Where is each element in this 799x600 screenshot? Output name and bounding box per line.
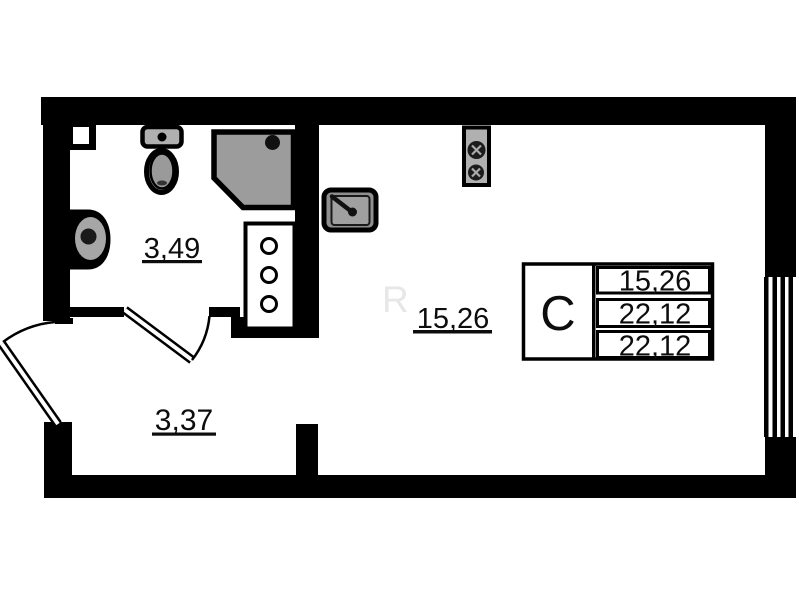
svg-text:22,12: 22,12 [619, 331, 692, 363]
svg-text:3,37: 3,37 [155, 404, 213, 437]
svg-text:R: R [382, 279, 409, 320]
svg-text:С: С [540, 287, 575, 341]
svg-text:15,26: 15,26 [619, 266, 692, 298]
svg-text:22,12: 22,12 [619, 299, 692, 331]
